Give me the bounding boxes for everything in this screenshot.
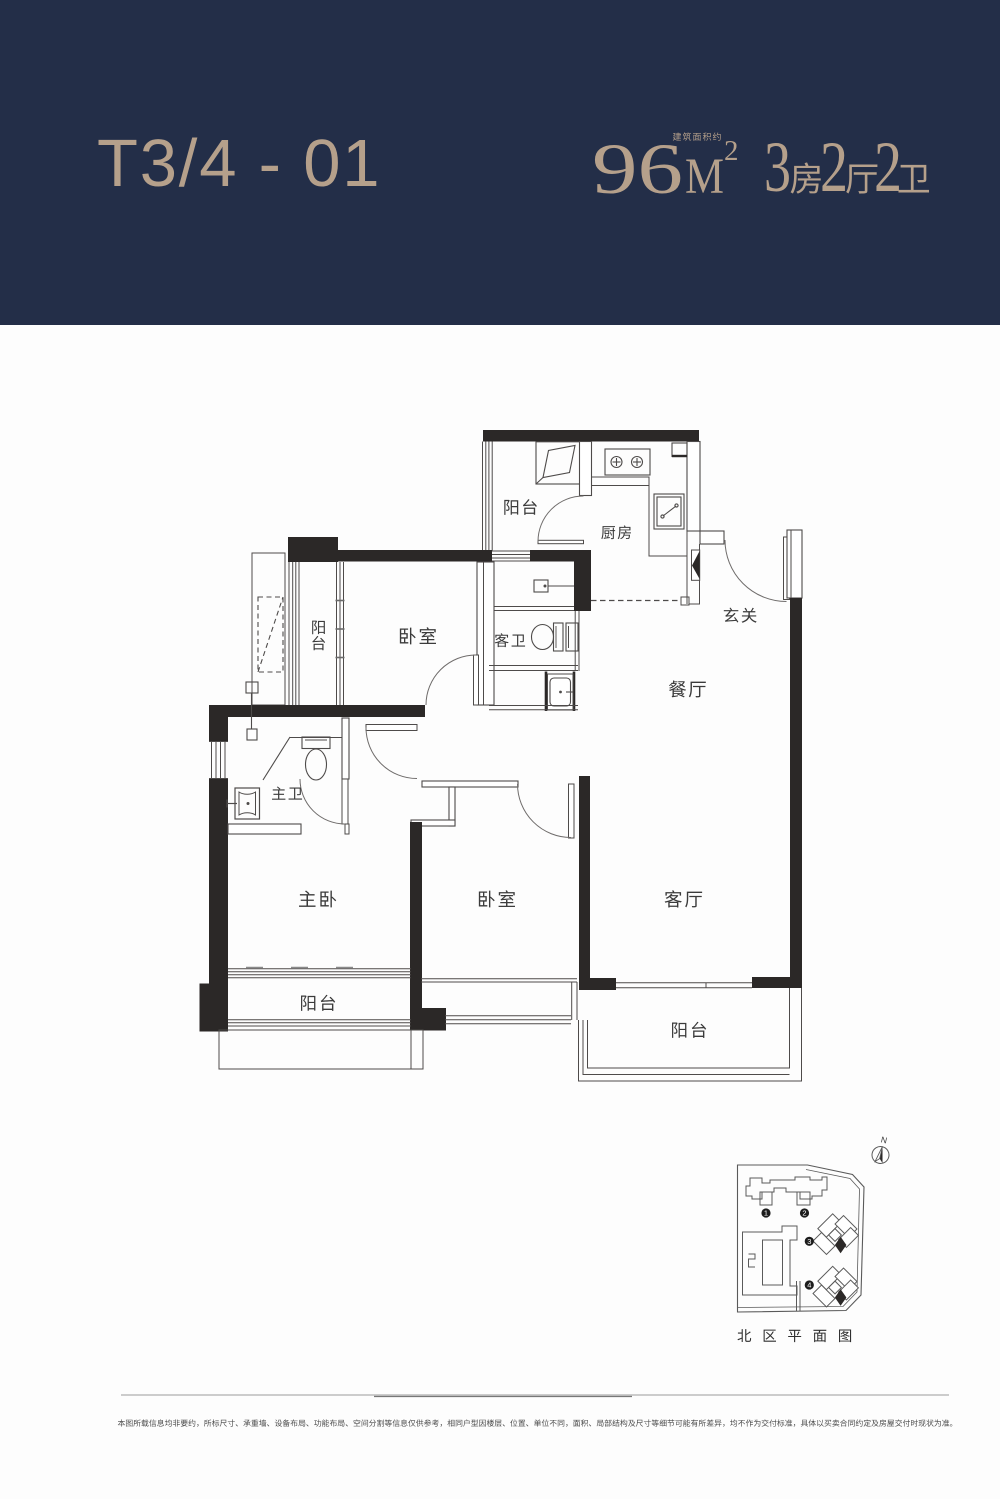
svg-text:N: N [880, 1134, 888, 1145]
svg-text:1: 1 [764, 1209, 768, 1218]
svg-text:96: 96 [592, 129, 683, 209]
svg-text:2: 2 [724, 135, 739, 167]
svg-text:3: 3 [807, 1237, 811, 1246]
svg-text:M: M [685, 149, 724, 205]
svg-text:2: 2 [820, 127, 848, 207]
svg-text:4: 4 [807, 1281, 811, 1290]
svg-text:2: 2 [802, 1209, 806, 1218]
svg-text:2: 2 [874, 127, 902, 207]
svg-text:T3/4 - 01: T3/4 - 01 [97, 126, 381, 201]
svg-text:3: 3 [764, 127, 791, 207]
